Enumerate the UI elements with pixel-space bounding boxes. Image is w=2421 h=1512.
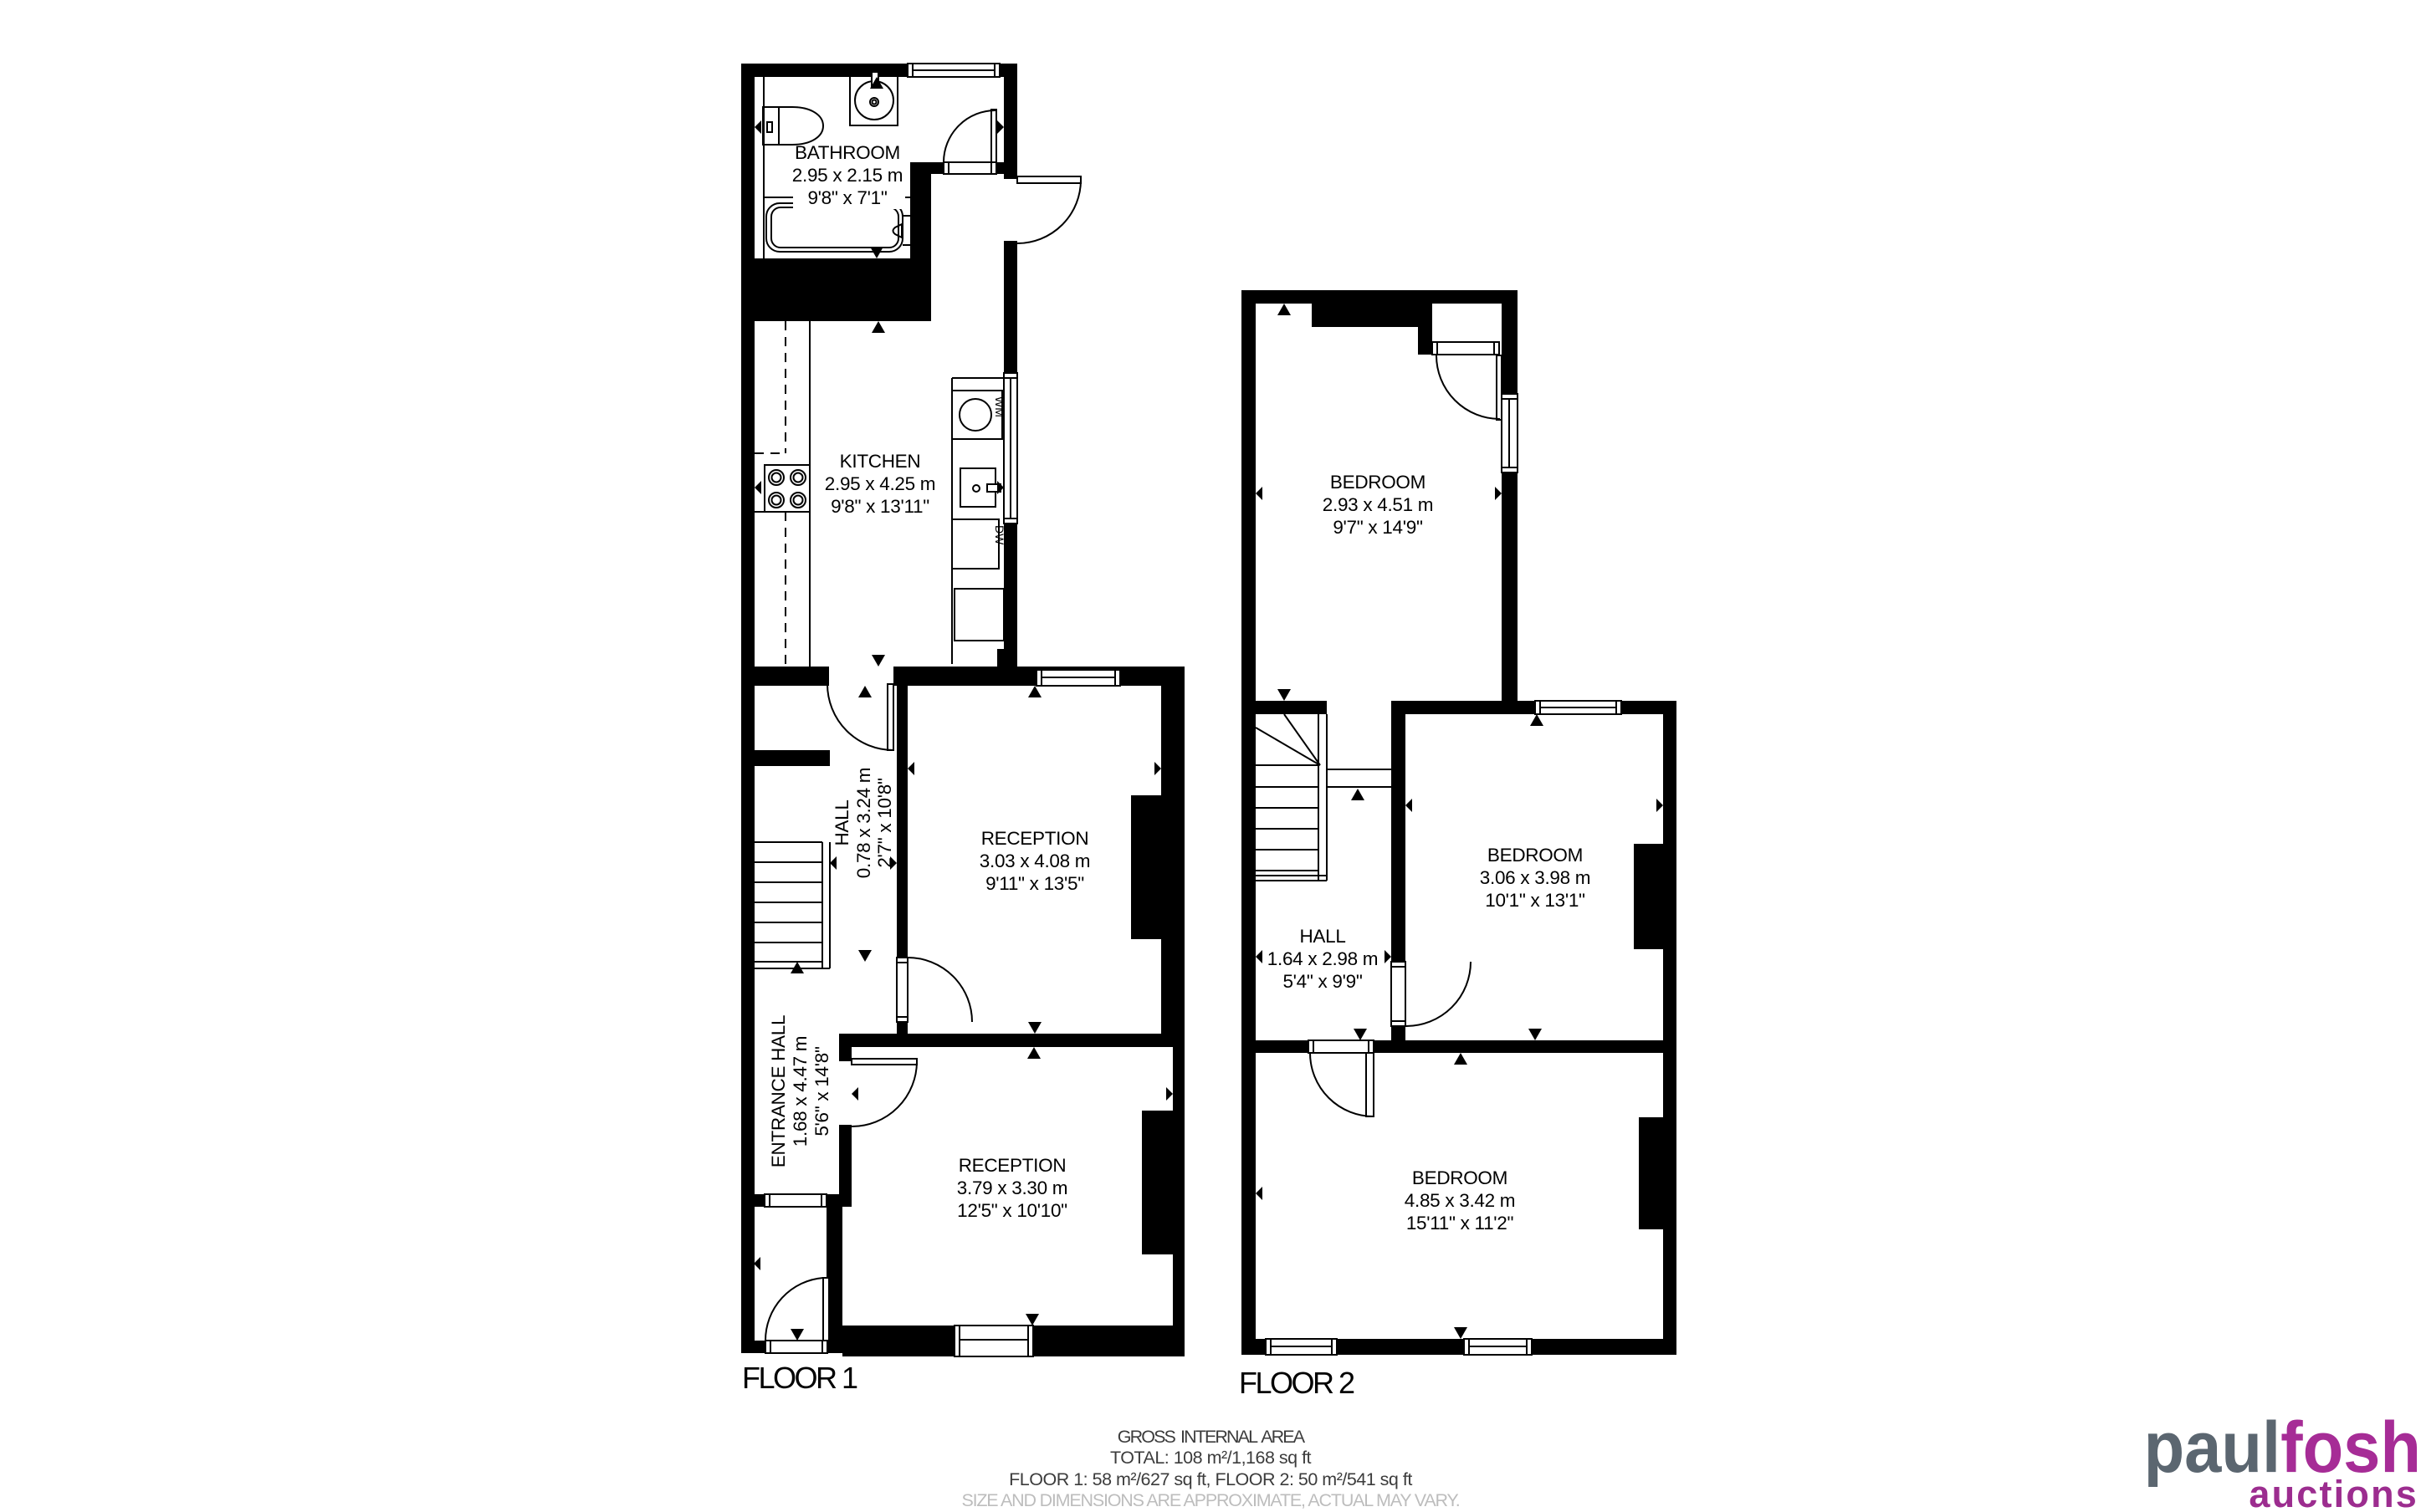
svg-text:HALL: HALL [832,799,852,845]
svg-text:2.93 x 4.51 m: 2.93 x 4.51 m [1323,494,1433,515]
svg-text:9'11" x 13'5": 9'11" x 13'5" [985,873,1084,894]
svg-text:GROSS INTERNAL AREA: GROSS INTERNAL AREA [1118,1427,1306,1447]
svg-text:9'8" x 13'11": 9'8" x 13'11" [831,496,929,517]
svg-text:BEDROOM: BEDROOM [1412,1167,1507,1188]
svg-text:12'5" x 10'10": 12'5" x 10'10" [957,1200,1067,1221]
svg-text:10'1" x 13'1": 10'1" x 13'1" [1485,890,1585,911]
svg-text:0.78 x 3.24 m: 0.78 x 3.24 m [853,768,874,878]
svg-text:BEDROOM: BEDROOM [1330,472,1425,493]
svg-text:2.95 x 4.25 m: 2.95 x 4.25 m [825,473,935,494]
svg-text:FLOOR 1: 58 m²/627 sq ft, FLOO: FLOOR 1: 58 m²/627 sq ft, FLOOR 2: 50 m²… [1009,1469,1412,1489]
svg-text:auctions: auctions [2249,1473,2418,1512]
svg-text:WM: WM [993,396,1006,417]
svg-text:RECEPTION: RECEPTION [981,828,1089,849]
svg-text:5'6" x 14'8": 5'6" x 14'8" [811,1046,832,1137]
svg-text:3.03 x 4.08 m: 3.03 x 4.08 m [980,850,1090,871]
svg-text:KITCHEN: KITCHEN [840,451,921,472]
svg-text:15'11" x 11'2": 15'11" x 11'2" [1406,1213,1514,1234]
svg-text:4.85 x 3.42 m: 4.85 x 3.42 m [1405,1190,1515,1211]
svg-text:SIZE AND DIMENSIONS ARE APPROX: SIZE AND DIMENSIONS ARE APPROXIMATE, ACT… [961,1490,1459,1510]
svg-text:BATHROOM: BATHROOM [795,142,900,163]
svg-text:1.64 x 2.98 m: 1.64 x 2.98 m [1267,948,1378,969]
svg-text:2.95 x 2.15 m: 2.95 x 2.15 m [792,165,903,186]
svg-text:HALL: HALL [1299,926,1345,947]
svg-text:FLOOR 2: FLOOR 2 [1239,1366,1354,1400]
svg-text:9'8" x 7'1": 9'8" x 7'1" [807,187,887,208]
svg-text:ENTRANCE HALL: ENTRANCE HALL [768,1015,789,1167]
svg-text:RECEPTION: RECEPTION [959,1155,1067,1176]
svg-text:2'7" x 10'8": 2'7" x 10'8" [874,778,895,868]
svg-text:3.06 x 3.98 m: 3.06 x 3.98 m [1480,867,1590,888]
svg-text:1.68 x 4.47 m: 1.68 x 4.47 m [790,1036,811,1147]
svg-text:BEDROOM: BEDROOM [1487,845,1583,866]
svg-text:FLOOR 1: FLOOR 1 [742,1361,857,1395]
svg-text:TOTAL: 108 m²/1,168 sq ft: TOTAL: 108 m²/1,168 sq ft [1110,1448,1312,1468]
svg-text:5'4" x 9'9": 5'4" x 9'9" [1282,971,1362,992]
svg-text:9'7" x 14'9": 9'7" x 14'9" [1333,517,1423,538]
svg-text:DW: DW [993,525,1006,545]
svg-text:3.79 x 3.30 m: 3.79 x 3.30 m [957,1177,1067,1198]
